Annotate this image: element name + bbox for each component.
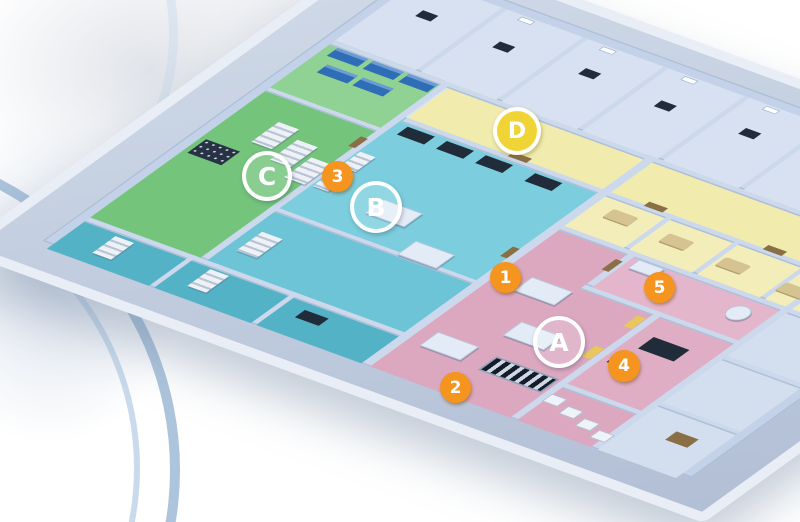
- marker-zone-a: A: [533, 316, 585, 368]
- floorplan-illustration: A B C D 1 2 3 4 5: [0, 0, 800, 522]
- badge-room-5: 5: [644, 272, 675, 303]
- marker-zone-d: D: [493, 107, 541, 155]
- badge-room-3: 3: [322, 161, 353, 192]
- marker-zone-c: C: [242, 151, 292, 201]
- badge-room-2: 2: [440, 372, 471, 403]
- marker-zone-b: B: [350, 181, 402, 233]
- badge-room-4: 4: [608, 350, 640, 382]
- badge-room-1: 1: [490, 262, 521, 293]
